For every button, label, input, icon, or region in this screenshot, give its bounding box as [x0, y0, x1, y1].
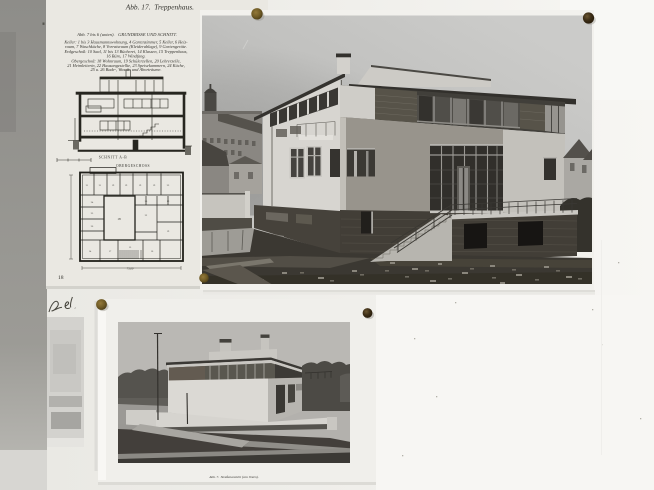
svg-text:Abb. 17. Treppenhaus.: Abb. 17. Treppenhaus. — [125, 3, 194, 12]
svg-text:Abb. 7. Straßenansicht (von O: Abb. 7. Straßenansicht (von Osten). — [208, 475, 258, 479]
svg-text:18: 18 — [117, 217, 121, 221]
svg-text:18: 18 — [58, 275, 64, 281]
svg-text:SCHNITT A-B: SCHNITT A-B — [99, 156, 128, 160]
svg-text:Abb. 7 bis 6 (unten). GRUNDR: Abb. 7 bis 6 (unten). GRUNDRISSE UND SCH… — [76, 32, 177, 37]
svg-text:OBERGESCHOSS: OBERGESCHOSS — [116, 164, 150, 168]
